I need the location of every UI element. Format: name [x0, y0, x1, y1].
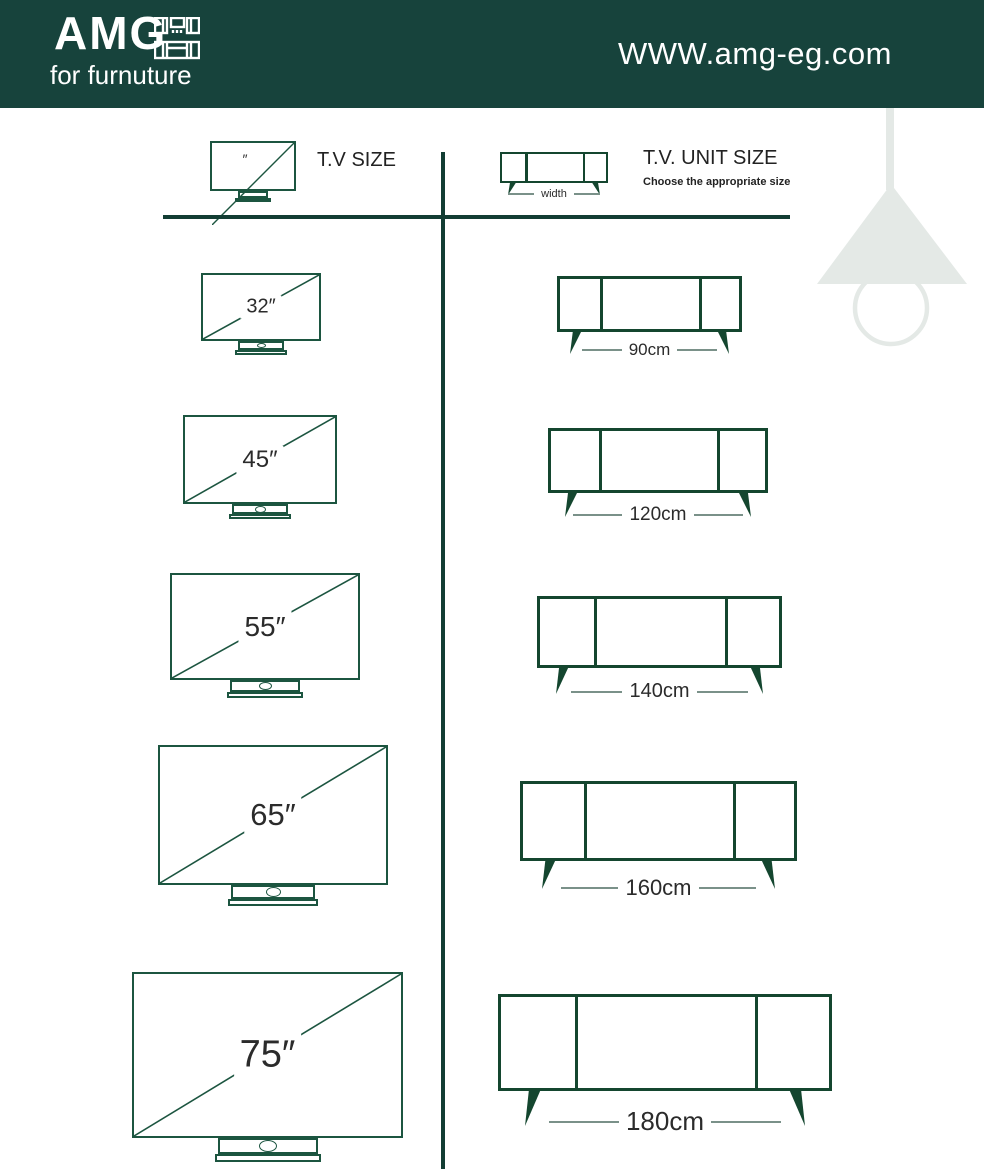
mini-unit-divider — [583, 154, 586, 181]
dash-line — [694, 514, 743, 516]
tv-stand — [232, 504, 288, 514]
unit-width-row: 120cm — [548, 504, 768, 526]
tv-screen: 32″ — [201, 273, 321, 341]
dash-line — [697, 691, 748, 693]
mini-tv-screen: ″ — [210, 141, 296, 191]
unit-body — [557, 276, 742, 332]
unit-body — [520, 781, 797, 861]
tv-screen: 75″ — [132, 972, 403, 1138]
dash-line — [549, 1121, 619, 1123]
stand-knob-icon — [255, 506, 266, 513]
dash-line — [677, 349, 717, 351]
tv-stand-base — [215, 1154, 321, 1162]
dash-line — [573, 514, 622, 516]
tv-size-label: 55″ — [238, 611, 291, 643]
website-url: WWW.amg-eg.com — [618, 36, 892, 72]
inch-mark: ″ — [240, 151, 249, 167]
width-label-row: width — [500, 188, 608, 200]
tv-stand-base — [229, 514, 291, 519]
tv-screen: 65″ — [158, 745, 388, 885]
tv-stand — [238, 341, 284, 350]
unit-width-row: 140cm — [537, 680, 782, 703]
right-column-subtitle: Choose the appropriate size — [643, 176, 790, 188]
dash-line — [508, 193, 534, 195]
unit-width-label: 120cm — [629, 504, 686, 526]
lamp-shade-icon — [817, 184, 967, 284]
stand-knob-icon — [257, 343, 266, 348]
unit-divider — [584, 784, 587, 858]
tv-stand — [230, 680, 300, 692]
pendant-lamp-illustration — [810, 108, 975, 355]
right-column-title: T.V. UNIT SIZE — [643, 147, 777, 170]
unit-body — [548, 428, 768, 493]
vertical-divider — [441, 152, 445, 1169]
tv-screen: 45″ — [183, 415, 337, 504]
left-column-title: T.V SIZE — [317, 149, 396, 172]
size-guide-poster: AMG for furnuture WWW.amg-eg.com — [0, 0, 984, 1169]
unit-width-label: 90cm — [629, 340, 671, 360]
tv-stand-base — [227, 692, 303, 698]
unit-size-legend-icon: width — [500, 152, 608, 183]
tv-stand-base — [228, 899, 318, 906]
brand-tagline: for furnuture — [50, 60, 192, 91]
stand-knob-icon — [259, 682, 272, 690]
header-band: AMG for furnuture WWW.amg-eg.com — [0, 0, 984, 108]
dash-line — [582, 349, 622, 351]
tv-size-label: 75″ — [234, 1034, 302, 1077]
tv-figure-65: 65″ — [158, 745, 388, 906]
tv-stand — [218, 1138, 318, 1154]
unit-width-label: 140cm — [629, 680, 689, 703]
width-label: width — [541, 188, 567, 200]
tv-stand-base — [235, 350, 287, 355]
unit-width-row: 180cm — [498, 1106, 832, 1137]
kitchen-cabinet-icon — [154, 17, 200, 66]
horizontal-divider — [163, 215, 790, 219]
diagonal-line — [212, 143, 294, 225]
tv-figure-32: 32″ — [201, 273, 321, 355]
tv-screen: 55″ — [170, 573, 360, 680]
unit-divider — [755, 997, 758, 1088]
unit-body — [537, 596, 782, 668]
unit-figure-90cm: 90cm — [557, 276, 742, 332]
dash-line — [561, 887, 618, 889]
dash-line — [574, 193, 600, 195]
unit-divider — [594, 599, 597, 665]
unit-width-row: 160cm — [520, 875, 797, 901]
unit-figure-180cm: 180cm — [498, 994, 832, 1091]
unit-divider — [575, 997, 578, 1088]
brand-logo-text: AMG — [54, 6, 167, 60]
dash-line — [699, 887, 756, 889]
stand-knob-icon — [259, 1140, 277, 1152]
tv-size-label: 32″ — [240, 296, 281, 319]
unit-divider — [733, 784, 736, 858]
mini-unit-divider — [525, 154, 528, 181]
unit-divider — [600, 279, 603, 329]
unit-width-label: 160cm — [625, 875, 691, 901]
unit-body — [498, 994, 832, 1091]
tv-size-label: 45″ — [236, 446, 283, 474]
stand-knob-icon — [266, 887, 281, 897]
tv-figure-55: 55″ — [170, 573, 360, 698]
unit-figure-120cm: 120cm — [548, 428, 768, 493]
tv-stand — [231, 885, 315, 899]
lamp-cord — [886, 108, 894, 190]
unit-divider — [725, 599, 728, 665]
unit-divider — [717, 431, 720, 490]
dash-line — [571, 691, 622, 693]
unit-divider — [699, 279, 702, 329]
dash-line — [711, 1121, 781, 1123]
mini-unit-body — [500, 152, 608, 183]
unit-width-label: 180cm — [626, 1106, 704, 1137]
tv-figure-75: 75″ — [132, 972, 403, 1162]
tv-figure-45: 45″ — [183, 415, 337, 519]
unit-figure-160cm: 160cm — [520, 781, 797, 861]
unit-width-row: 90cm — [557, 340, 742, 360]
unit-figure-140cm: 140cm — [537, 596, 782, 668]
unit-divider — [599, 431, 602, 490]
tv-size-legend-icon: ″ — [210, 141, 296, 202]
tv-size-label: 65″ — [244, 797, 301, 833]
